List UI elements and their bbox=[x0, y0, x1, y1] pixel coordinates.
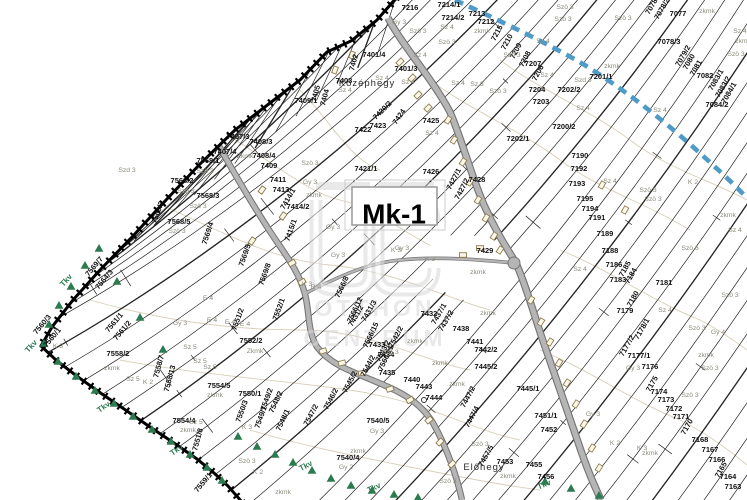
parcel-number-label: 7552/1 bbox=[270, 297, 286, 322]
landuse-label: Szd 3 bbox=[118, 167, 136, 174]
zone-label: Mk-1 bbox=[362, 198, 426, 229]
landuse-label: Szö 3 bbox=[409, 28, 427, 35]
parcel-number-label: 7204 bbox=[529, 85, 547, 94]
parcel-number-label: 7177/1 bbox=[628, 351, 651, 360]
landuse-label: Szö 3 bbox=[196, 168, 214, 175]
forest-triangle-icon bbox=[95, 244, 104, 252]
landuse-label: Szö 3 bbox=[177, 188, 195, 195]
building-icon bbox=[490, 232, 498, 240]
landuse-label: Szd 3 bbox=[574, 77, 592, 84]
landuse-label: K 2 bbox=[610, 440, 620, 447]
landuse-label: Sz 4 bbox=[603, 178, 617, 185]
parcel-number-label: 7426 bbox=[423, 167, 440, 176]
landuse-label: zkmk bbox=[474, 28, 490, 35]
parcel-number-label: 7078/3 bbox=[658, 37, 681, 46]
parcel-number-label: 7455 bbox=[526, 460, 543, 469]
landuse-label: Sz 4 bbox=[413, 52, 427, 59]
landuse-label: Sz 4 bbox=[653, 107, 667, 114]
landuse-label: zkmk bbox=[480, 310, 496, 317]
parcel-number-label: 7408/3 bbox=[250, 137, 273, 146]
landuse-label: zkmk bbox=[449, 381, 465, 388]
parcel-number-label: 7558/2 bbox=[107, 349, 130, 358]
landuse-label: K 2 bbox=[143, 379, 153, 386]
parcel-number-label: 7212 bbox=[478, 17, 495, 26]
forest-triangle-icon bbox=[159, 345, 168, 353]
forest-triangle-icon bbox=[136, 313, 145, 321]
landuse-label: Szö 3 bbox=[644, 196, 662, 203]
parcel-number-label: 7428 bbox=[469, 175, 486, 184]
parcel-number-label: 7558/13 bbox=[162, 364, 178, 393]
parcel-number-label: 7176 bbox=[642, 362, 659, 371]
landuse-label: Sz 4 bbox=[576, 105, 590, 112]
landuse-label: Sz 4 bbox=[536, 38, 550, 45]
parcel-number-label: 7214/2 bbox=[442, 13, 465, 22]
parcel-number-label: 7452 bbox=[541, 425, 558, 434]
landuse-label: K 3 bbox=[391, 247, 401, 254]
parcel-number-label: 7192 bbox=[571, 164, 588, 173]
landuse-label: Szö 3 bbox=[168, 228, 186, 235]
parcel-number-label: 7425 bbox=[423, 116, 440, 125]
map-labels: 72167214/17214/2721372127215721072097208… bbox=[23, 0, 747, 496]
landuse-label: zkmk bbox=[104, 365, 120, 372]
landuse-label: K 3 bbox=[637, 445, 647, 452]
parcel-number-label: 7407/4 bbox=[214, 147, 238, 156]
landuse-label: Szö 3 bbox=[471, 441, 489, 448]
parcel-number-label: 7445/2 bbox=[475, 362, 498, 371]
landuse-label: E 4 bbox=[203, 295, 213, 302]
parcel-number-label: 7168 bbox=[692, 435, 709, 444]
parcel-number-label: 7540/5 bbox=[367, 416, 390, 425]
parcel-number-label: 7424 bbox=[390, 106, 407, 126]
forest-triangle-icon bbox=[289, 458, 298, 466]
landuse-label: K 3 bbox=[53, 343, 63, 350]
parcel-number-label: 7191 bbox=[589, 213, 606, 222]
landuse-label: zkmk bbox=[699, 8, 715, 15]
landuse-label: Gy 3 bbox=[626, 365, 641, 372]
landuse-label: zkmk bbox=[207, 392, 223, 399]
landuse-label: zkmk bbox=[275, 489, 291, 496]
landuse-label: zkmk bbox=[180, 427, 196, 434]
landuse-label: Gy 3 bbox=[392, 19, 407, 26]
cadastral-map-canvas[interactable]: OTTHON CENTRUM 72167214/17214/2721372127… bbox=[0, 0, 747, 500]
parcel-number-label: 7409/1 bbox=[295, 96, 318, 105]
parcel-number-label: 7552/2 bbox=[240, 336, 263, 345]
parcel-number-label: 7438 bbox=[453, 324, 470, 333]
municipal-boundary bbox=[41, 0, 397, 500]
street-name-label: Előhegy bbox=[463, 462, 504, 473]
parcel-number-label: 7407/3 bbox=[227, 132, 250, 141]
landuse-label: Sz 4 bbox=[401, 79, 415, 86]
landuse-label: Sz 3 bbox=[470, 81, 484, 88]
landuse-label: Szö 3 bbox=[727, 51, 745, 58]
parcel-number-label: 7164 bbox=[720, 472, 738, 481]
landuse-label: Sz 4 bbox=[573, 266, 587, 273]
landuse-label: K 2 bbox=[253, 469, 263, 476]
parcel-number-label: 7451/1 bbox=[535, 411, 558, 420]
building-icon bbox=[546, 338, 554, 346]
landuse-label: Szö 3 bbox=[688, 325, 706, 332]
landuse-label: Gy 3 bbox=[331, 252, 346, 259]
landuse-label: Szö 6 bbox=[681, 245, 699, 252]
landuse-label: Sz 4 bbox=[425, 130, 439, 137]
parcel-number-label: 7167 bbox=[702, 445, 719, 454]
building-icon bbox=[258, 186, 266, 194]
parcel-number-label: 7200/2 bbox=[553, 122, 576, 131]
landuse-label: Sz 5 bbox=[203, 364, 217, 371]
parcel-number-label: 7421/1 bbox=[355, 164, 378, 173]
landuse-label: Szö 3 bbox=[238, 458, 256, 465]
landuse-label: Szö 3 bbox=[489, 88, 507, 95]
landuse-label: Gy 3 bbox=[173, 320, 188, 327]
landuse-label: zkmk bbox=[500, 473, 516, 480]
parcel-number-label: 7190 bbox=[572, 151, 589, 160]
landuse-label: zkmk bbox=[350, 448, 366, 455]
landuse-label: E 4 bbox=[240, 321, 250, 328]
protected-area-label: Tkv bbox=[95, 399, 112, 415]
parcel-number-label: 7183 bbox=[610, 275, 627, 284]
parcel-number-label: 7569/8 bbox=[256, 262, 272, 287]
building-icon bbox=[588, 444, 596, 452]
building-icon bbox=[580, 420, 588, 428]
parcel-number-label: 7202/1 bbox=[507, 134, 530, 143]
landuse-label: Gy 3 bbox=[326, 224, 341, 231]
landuse-label: K 2 bbox=[688, 179, 698, 186]
parcel-number-label: 7194 bbox=[582, 204, 600, 213]
landuse-label: Sz 4 bbox=[658, 307, 672, 314]
parcel-number-label: 7179 bbox=[617, 306, 634, 315]
parcel-number-label: 7423 bbox=[370, 121, 387, 130]
parcel-number-label: 7433 bbox=[369, 340, 386, 349]
building-icon bbox=[460, 253, 467, 258]
protected-area-label: Tkv bbox=[23, 338, 39, 355]
parcel-number-label: 7420/2 bbox=[371, 99, 394, 122]
landuse-label: zkmk bbox=[735, 38, 747, 45]
landuse-label: E 4 bbox=[225, 319, 235, 326]
forest-triangle-icon bbox=[390, 490, 399, 498]
landuse-label: Sz 4 bbox=[733, 28, 747, 35]
parcel-number-label: 7193 bbox=[569, 179, 586, 188]
forest-triangle-icon bbox=[113, 277, 122, 285]
forest-triangle-icon bbox=[55, 301, 64, 309]
zone-label-box: Mk-1 bbox=[345, 180, 445, 230]
landuse-label: K 3 bbox=[242, 424, 252, 431]
parcel-number-label: 7401/3 bbox=[395, 64, 418, 73]
cadastral-map[interactable]: OTTHON CENTRUM 72167214/17214/2721372127… bbox=[0, 0, 747, 500]
parcel-number-label: 7559/1 bbox=[192, 471, 214, 494]
landuse-label: zkmk bbox=[698, 352, 714, 359]
landuse-label: Sz 4 bbox=[440, 24, 454, 31]
forest-triangle-icon bbox=[567, 484, 576, 492]
parcel-number-label: 7401/4 bbox=[363, 50, 387, 59]
landuse-label: Zkmk bbox=[237, 153, 254, 160]
landuse-label: Sz 5 bbox=[126, 376, 140, 383]
parcel-number-label: 7084/2 bbox=[706, 100, 729, 109]
street-name-label: Középhegy bbox=[339, 78, 396, 89]
parcel-number-label: 7203 bbox=[533, 97, 550, 106]
building-icon bbox=[563, 379, 571, 387]
landuse-label: zkmk bbox=[470, 269, 486, 276]
landuse-label: K 3 bbox=[425, 256, 435, 263]
landuse-label: Zkmk bbox=[247, 348, 264, 355]
landuse-label: Sz 5 bbox=[189, 419, 203, 426]
forest-triangle-icon bbox=[414, 493, 423, 500]
landuse-label: Szö 3 bbox=[503, 52, 521, 59]
landuse-label: zkmk bbox=[720, 212, 736, 219]
parcel-number-label: 7414/2 bbox=[287, 202, 310, 211]
parcel-number-label: 7214/1 bbox=[438, 0, 461, 9]
parcel-number-label: 7568/1 bbox=[197, 156, 220, 165]
parcel-number-label: 7550/3 bbox=[233, 399, 249, 424]
landuse-label: zkmk bbox=[407, 338, 423, 345]
parcel-number-label: 7408/4 bbox=[253, 151, 277, 160]
landuse-label: zkmk bbox=[432, 360, 448, 367]
building-icon bbox=[621, 206, 628, 214]
landuse-label: zkmk bbox=[306, 192, 322, 199]
parcel-number-label: 7173 bbox=[658, 395, 675, 404]
landuse-label: Szö 3 bbox=[554, 16, 572, 23]
parcel-number-label: 7163 bbox=[725, 482, 742, 491]
parcel-number-label: 7411 bbox=[270, 175, 286, 184]
parcel-number-label: 7444 bbox=[426, 393, 444, 402]
parcel-number-label: 7568/5 bbox=[168, 217, 191, 226]
parcel-number-label: 7547/2 bbox=[301, 403, 320, 427]
landuse-label: Sz 4 bbox=[540, 72, 554, 79]
landuse-label: Szö 3 bbox=[701, 365, 719, 372]
parcel-number-label: 7443 bbox=[416, 382, 433, 391]
parcel-number-label: 7189 bbox=[597, 229, 614, 238]
building-icon bbox=[572, 400, 580, 408]
parcel-number-label: 7442/2 bbox=[475, 345, 498, 354]
landuse-label: Sz 4 bbox=[728, 227, 742, 234]
parcel-number-label: 7435 bbox=[379, 368, 396, 377]
parcel-number-label: 7188 bbox=[602, 246, 619, 255]
parcel-number-label: 7409 bbox=[261, 161, 278, 170]
landuse-label: Szö 3 bbox=[614, 15, 632, 22]
landuse-label: Gy 3 bbox=[586, 411, 601, 418]
parcel-number-label: 7569/5 bbox=[236, 243, 252, 268]
landuse-label: Szö 3 bbox=[721, 292, 739, 299]
landuse-label: Szö 3 bbox=[301, 160, 319, 167]
landuse-label: Sz 5 bbox=[183, 344, 197, 351]
forest-triangle-icon bbox=[327, 474, 336, 482]
landuse-label: Szö 3 bbox=[189, 203, 207, 210]
parcel-number-label: 7548/1 bbox=[274, 408, 292, 433]
forest-triangle-icon bbox=[253, 442, 262, 450]
parcel-number-label: 7201/1 bbox=[590, 72, 613, 81]
parcel-number-label: 7429 bbox=[477, 246, 494, 255]
landuse-label: Gy 3 bbox=[370, 428, 385, 435]
landuse-label: zkmk bbox=[604, 63, 620, 70]
forest-triangle-icon bbox=[234, 432, 243, 440]
landuse-label: Szö 3 bbox=[681, 392, 699, 399]
landuse-label: R 4 bbox=[311, 284, 322, 291]
parcel-number-label: 7202/2 bbox=[558, 85, 581, 94]
parcel-number-label: 7181 bbox=[656, 278, 673, 287]
parcel-number-label: 7445/1 bbox=[517, 384, 540, 393]
landuse-label: Gy 3 bbox=[303, 179, 318, 186]
parcel-number-label: 7195 bbox=[577, 194, 594, 203]
parcel-number-label: 7216 bbox=[402, 3, 419, 12]
building-icon bbox=[595, 464, 603, 472]
landuse-label: Szö 3 bbox=[381, 349, 399, 356]
landuse-label: Sz 4 bbox=[451, 80, 465, 87]
landuse-label: Gy 2 bbox=[339, 464, 354, 471]
landuse-label: E 4 bbox=[207, 317, 217, 324]
forest-triangle-icon bbox=[347, 481, 356, 489]
landuse-label: Szö 3 bbox=[439, 478, 457, 485]
landuse-label: Szö 3 bbox=[639, 187, 657, 194]
landuse-label: Szö 3 bbox=[556, 4, 574, 11]
parcel-number-label: 7550/1 bbox=[239, 389, 262, 398]
parcel-number-label: 7077 bbox=[670, 9, 687, 18]
parcel-number-label: 7554/5 bbox=[208, 381, 231, 390]
parcel-number-label: 7568/3 bbox=[197, 191, 220, 200]
landuse-label: Szö 3 bbox=[438, 39, 456, 46]
landuse-label: Gy 4 bbox=[711, 329, 726, 336]
parcel-number-label: 7568/2 bbox=[171, 176, 194, 185]
building-icon bbox=[332, 66, 339, 74]
